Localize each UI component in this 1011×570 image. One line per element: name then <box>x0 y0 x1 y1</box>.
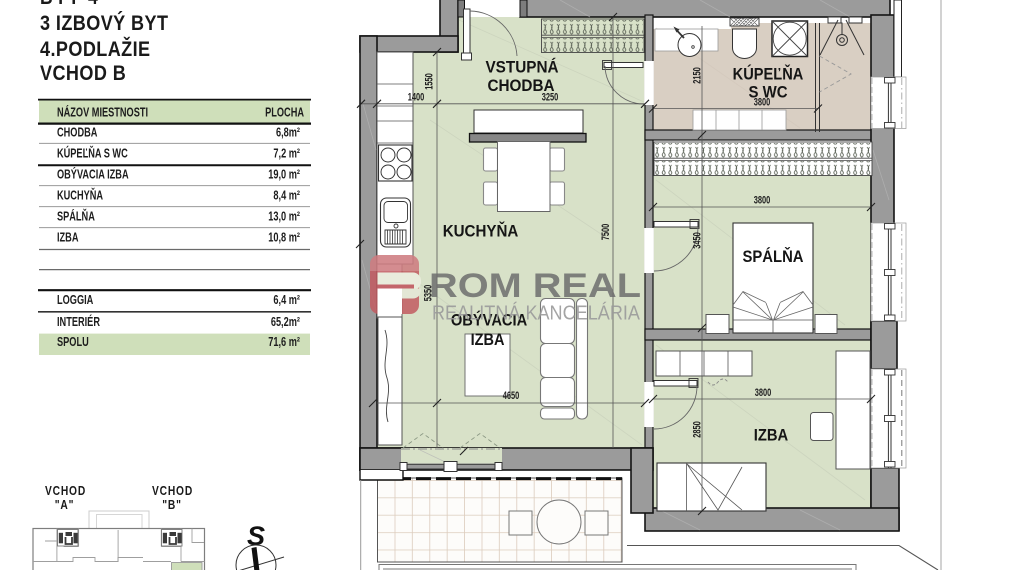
svg-text:19,0 m²: 19,0 m² <box>268 168 300 182</box>
svg-text:7500: 7500 <box>598 224 611 241</box>
svg-text:KÚPEĽŇA: KÚPEĽŇA <box>733 63 804 83</box>
svg-text:10,8 m²: 10,8 m² <box>268 231 300 245</box>
svg-text:2850: 2850 <box>690 421 703 438</box>
svg-text:LOGGIA: LOGGIA <box>57 294 93 308</box>
svg-text:OBÝVACIA IZBA: OBÝVACIA IZBA <box>57 167 129 182</box>
svg-text:SPOLU: SPOLU <box>57 336 89 350</box>
svg-text:IZBA: IZBA <box>57 231 78 245</box>
svg-text:CHODBA: CHODBA <box>487 76 554 95</box>
svg-text:65,2m²: 65,2m² <box>271 316 300 330</box>
svg-text:4.PODLAŽIE: 4.PODLAŽIE <box>40 35 151 61</box>
svg-text:6,8m²: 6,8m² <box>276 126 300 140</box>
svg-text:IZBA: IZBA <box>471 331 505 349</box>
svg-text:3450: 3450 <box>690 232 703 249</box>
svg-text:INTERIÉR: INTERIÉR <box>57 315 100 330</box>
svg-text:4650: 4650 <box>503 388 520 401</box>
svg-text:3800: 3800 <box>754 193 771 206</box>
svg-text:KUCHYŇA: KUCHYŇA <box>57 188 103 203</box>
svg-text:1550: 1550 <box>422 73 435 90</box>
svg-text:SPÁLŇA: SPÁLŇA <box>57 209 95 224</box>
svg-text:SPÁLŇA: SPÁLŇA <box>742 246 803 266</box>
svg-text:ROM REAL: ROM REAL <box>429 267 641 305</box>
svg-text:VCHOD: VCHOD <box>45 485 86 498</box>
svg-text:6,4 m²: 6,4 m² <box>273 294 300 308</box>
svg-text:BYT 4: BYT 4 <box>40 0 100 10</box>
svg-text:7,2 m²: 7,2 m² <box>273 147 300 161</box>
svg-text:3800: 3800 <box>755 385 772 398</box>
svg-text:8,4 m²: 8,4 m² <box>273 189 300 203</box>
svg-text:"B": "B" <box>162 499 182 512</box>
svg-text:"A": "A" <box>55 499 75 512</box>
svg-text:71,6 m²: 71,6 m² <box>268 336 300 350</box>
svg-text:1400: 1400 <box>408 90 425 103</box>
svg-text:KUCHYŇA: KUCHYŇA <box>443 221 519 241</box>
svg-text:VCHOD: VCHOD <box>152 485 193 498</box>
svg-text:IZBA: IZBA <box>754 427 789 445</box>
svg-text:S WC: S WC <box>748 84 787 102</box>
svg-text:VSTUPNÁ: VSTUPNÁ <box>485 57 558 77</box>
svg-text:3 IZBOVÝ BYT: 3 IZBOVÝ BYT <box>40 9 168 35</box>
svg-text:REALITNÁ KANCELÁRIA: REALITNÁ KANCELÁRIA <box>432 302 641 325</box>
svg-text:VCHOD B: VCHOD B <box>40 62 126 86</box>
svg-text:2150: 2150 <box>690 67 703 84</box>
svg-text:NÁZOV MIESTNOSTI: NÁZOV MIESTNOSTI <box>57 105 148 120</box>
svg-text:KÚPEĽŇA S WC: KÚPEĽŇA S WC <box>57 146 128 161</box>
svg-text:PLOCHA: PLOCHA <box>265 106 304 120</box>
svg-text:13,0 m²: 13,0 m² <box>268 210 300 224</box>
svg-text:CHODBA: CHODBA <box>57 126 97 140</box>
